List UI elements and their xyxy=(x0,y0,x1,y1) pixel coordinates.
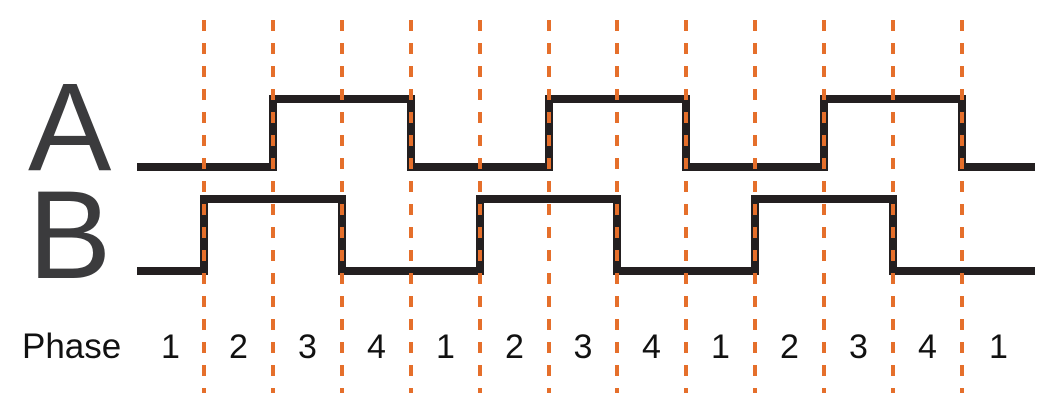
phase-number: 1 xyxy=(426,330,466,364)
phase-number: 1 xyxy=(151,330,191,364)
quadrature-timing-diagram: A B Phase 1234123412341 xyxy=(0,0,1063,419)
phase-number: 4 xyxy=(908,330,948,364)
phase-number: 2 xyxy=(770,330,810,364)
phase-number: 2 xyxy=(219,330,259,364)
phase-number: 1 xyxy=(979,330,1019,364)
phase-number: 3 xyxy=(563,330,603,364)
phase-number: 2 xyxy=(495,330,535,364)
phase-number: 3 xyxy=(839,330,879,364)
phase-number: 4 xyxy=(632,330,672,364)
phase-number: 3 xyxy=(288,330,328,364)
phase-number: 1 xyxy=(701,330,741,364)
phase-number: 4 xyxy=(357,330,397,364)
phase-numbers-row: 1234123412341 xyxy=(0,0,1063,419)
